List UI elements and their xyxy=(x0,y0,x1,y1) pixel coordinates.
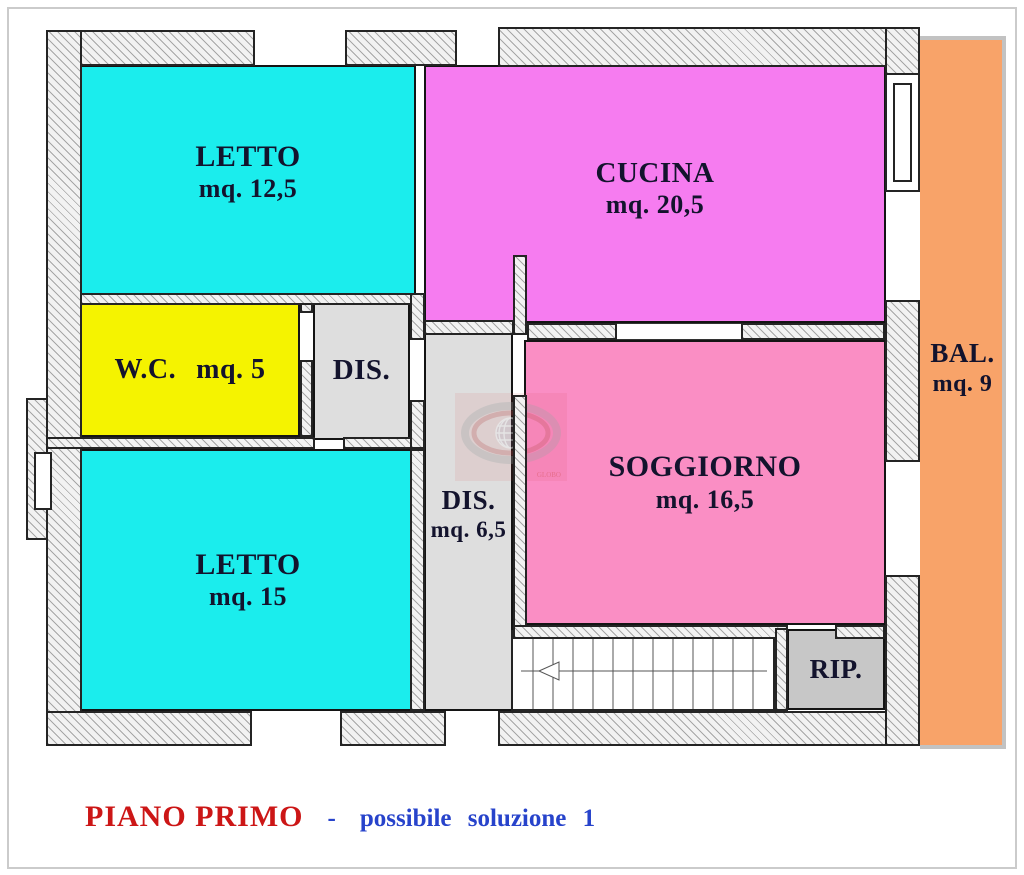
wall xyxy=(46,30,82,746)
wall xyxy=(513,395,527,630)
room-label: LETTO xyxy=(195,139,300,174)
room-cucina: CUCINA mq. 20,5 xyxy=(424,65,886,323)
wall xyxy=(498,711,920,746)
wall xyxy=(46,437,315,449)
wall xyxy=(775,628,788,711)
room-label: LETTO xyxy=(195,547,300,582)
wall xyxy=(527,323,617,340)
caption-title: PIANO PRIMO xyxy=(85,800,303,834)
wall xyxy=(835,625,885,639)
passage-opening xyxy=(617,323,741,340)
balcony-parapet xyxy=(920,36,1005,40)
room-area: mq. 5 xyxy=(196,353,265,386)
room-label: BAL. xyxy=(930,338,994,370)
room-area: mq. 6,5 xyxy=(431,516,507,543)
room-balcony: BAL. mq. 9 xyxy=(920,40,1005,746)
wall xyxy=(741,323,885,340)
caption: PIANO PRIMO - possibile soluzione 1 xyxy=(85,800,595,834)
watermark-logo: GLOBO xyxy=(455,393,567,481)
wall xyxy=(885,300,920,462)
wall xyxy=(885,27,920,75)
wall xyxy=(410,449,425,711)
caption-separator: - xyxy=(327,805,335,833)
window xyxy=(34,452,52,510)
wall xyxy=(424,320,514,335)
room-area: mq. 20,5 xyxy=(596,190,715,221)
wall xyxy=(410,293,425,340)
stairs-direction-arrow xyxy=(539,662,559,680)
room-label: SOGGIORNO xyxy=(609,449,802,484)
room-label: DIS. xyxy=(333,353,391,387)
staircase-treads xyxy=(513,632,773,709)
wall xyxy=(340,711,446,746)
balcony-parapet xyxy=(920,745,1005,749)
room-area: mq. 15 xyxy=(195,582,300,613)
wall xyxy=(46,711,252,746)
wall xyxy=(513,255,527,335)
room-label: CUCINA xyxy=(596,156,715,190)
balcony-parapet xyxy=(1002,36,1006,749)
room-rip: RIP. xyxy=(787,629,885,710)
staircase xyxy=(511,630,775,711)
wall xyxy=(498,27,920,67)
room-letto-1: LETTO mq. 12,5 xyxy=(80,65,416,295)
wall xyxy=(345,30,457,66)
room-wc: W.C. mq. 5 xyxy=(80,303,300,437)
wall xyxy=(513,625,788,639)
wall xyxy=(300,360,313,437)
caption-subtitle: possibile soluzione 1 xyxy=(360,805,595,833)
room-area: mq. 9 xyxy=(930,370,994,398)
room-label: W.C. xyxy=(114,353,176,386)
room-area: mq. 12,5 xyxy=(195,174,300,205)
wall xyxy=(300,303,313,313)
room-soggiorno: SOGGIORNO mq. 16,5 xyxy=(524,340,886,625)
room-label: DIS. xyxy=(431,485,507,517)
floor-plan-page: LETTO mq. 12,5 CUCINA mq. 20,5 W.C. mq. … xyxy=(0,0,1024,875)
window xyxy=(893,83,912,182)
watermark-text: GLOBO xyxy=(537,471,561,479)
room-dis-corridor: DIS. mq. 6,5 xyxy=(424,333,513,711)
wall xyxy=(410,400,425,449)
room-letto-2: LETTO mq. 15 xyxy=(80,449,416,711)
room-area: mq. 16,5 xyxy=(609,485,802,516)
wall xyxy=(80,293,425,305)
room-label: RIP. xyxy=(810,654,863,686)
wall xyxy=(885,575,920,746)
room-dis-upper: DIS. xyxy=(313,300,410,440)
